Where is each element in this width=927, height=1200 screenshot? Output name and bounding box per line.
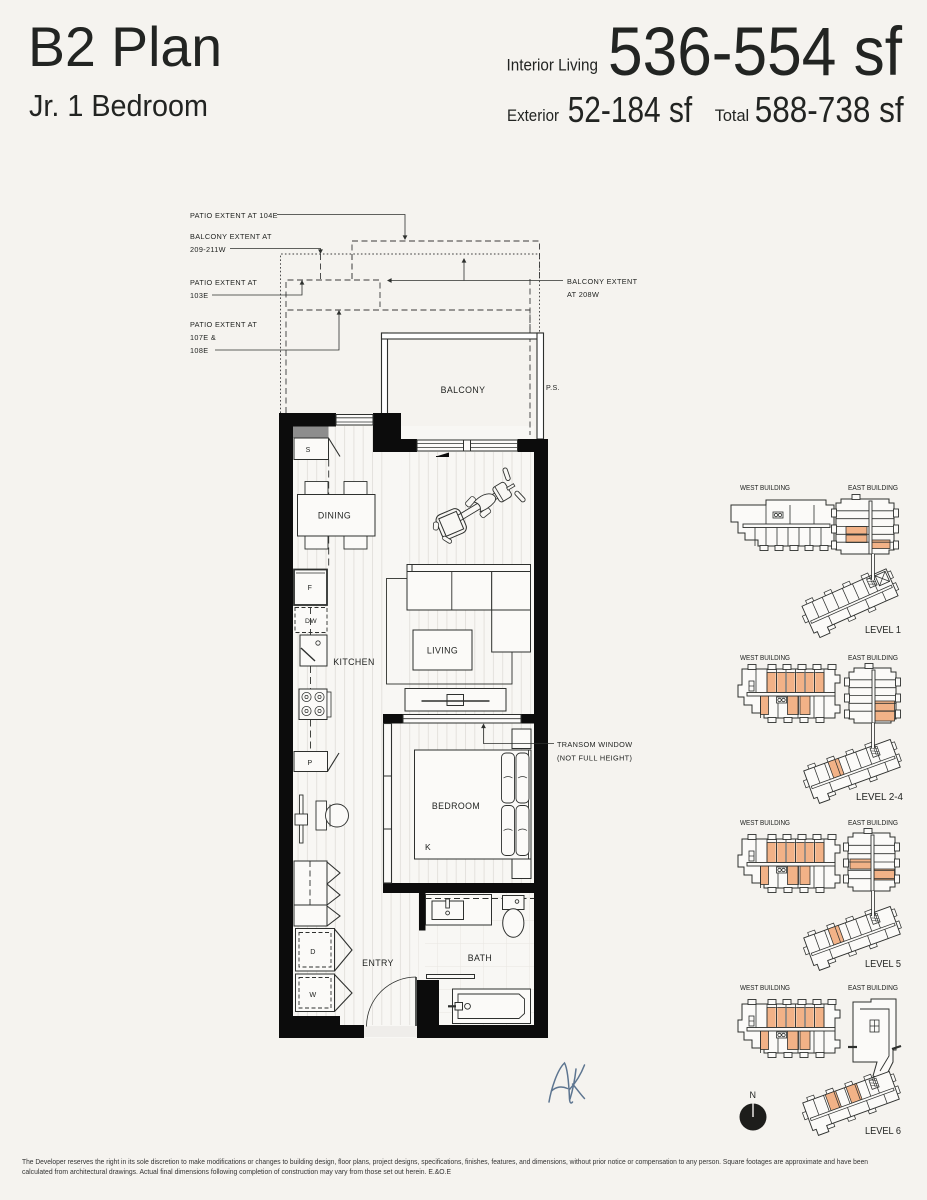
svg-text:LEVEL 2-4: LEVEL 2-4 [856, 792, 903, 803]
svg-text:PATIO EXTENT AT 104E: PATIO EXTENT AT 104E [190, 211, 278, 220]
svg-text:BATH: BATH [468, 953, 492, 963]
svg-text:PATIO EXTENT AT: PATIO EXTENT AT [190, 278, 257, 287]
svg-text:EAST BUILDING: EAST BUILDING [848, 485, 898, 492]
svg-text:B2 Plan: B2 Plan [28, 15, 222, 78]
svg-text:52-184 sf: 52-184 sf [568, 89, 693, 130]
svg-text:TRANSOM WINDOW: TRANSOM WINDOW [557, 740, 632, 749]
svg-text:LEVEL 1: LEVEL 1 [865, 625, 901, 636]
svg-text:107E &: 107E & [190, 333, 216, 342]
svg-text:AT 208W: AT 208W [567, 290, 599, 299]
svg-text:Interior Living: Interior Living [507, 55, 599, 74]
svg-text:Total: Total [715, 106, 750, 125]
svg-text:N: N [750, 1090, 757, 1100]
svg-text:BALCONY EXTENT: BALCONY EXTENT [567, 277, 638, 286]
svg-text:calculated from architectural: calculated from architectural drawings. … [22, 1167, 451, 1176]
svg-text:Jr. 1 Bedroom: Jr. 1 Bedroom [29, 89, 208, 123]
svg-text:EAST BUILDING: EAST BUILDING [848, 985, 898, 992]
svg-text:209-211W: 209-211W [190, 245, 226, 254]
svg-text:BEDROOM: BEDROOM [432, 801, 480, 811]
svg-text:588-738 sf: 588-738 sf [755, 89, 905, 130]
svg-text:F: F [308, 585, 313, 592]
svg-text:The Developer reserves the rig: The Developer reserves the right in its … [22, 1157, 868, 1166]
svg-text:WEST BUILDING: WEST BUILDING [740, 485, 790, 492]
svg-text:103E: 103E [190, 291, 208, 300]
svg-text:P.S.: P.S. [546, 383, 560, 392]
svg-text:536-554 sf: 536-554 sf [608, 13, 903, 90]
svg-text:108E: 108E [190, 346, 208, 355]
svg-text:D: D [310, 947, 316, 956]
svg-text:BALCONY: BALCONY [441, 385, 486, 395]
svg-text:LIVING: LIVING [427, 646, 458, 656]
svg-text:KITCHEN: KITCHEN [333, 657, 374, 667]
svg-text:BALCONY EXTENT AT: BALCONY EXTENT AT [190, 232, 272, 241]
svg-text:(NOT FULL HEIGHT): (NOT FULL HEIGHT) [557, 754, 632, 763]
svg-text:LEVEL 5: LEVEL 5 [865, 959, 901, 970]
svg-text:Exterior: Exterior [507, 106, 559, 125]
svg-text:LEVEL 6: LEVEL 6 [865, 1126, 901, 1137]
svg-text:DINING: DINING [318, 511, 351, 521]
svg-text:WEST BUILDING: WEST BUILDING [740, 985, 790, 992]
svg-text:S: S [306, 447, 311, 454]
svg-text:DW: DW [305, 618, 317, 625]
svg-text:P: P [307, 760, 312, 767]
svg-text:EAST BUILDING: EAST BUILDING [848, 820, 898, 827]
svg-text:EAST BUILDING: EAST BUILDING [848, 655, 898, 662]
svg-text:PATIO EXTENT AT: PATIO EXTENT AT [190, 320, 257, 329]
svg-text:ENTRY: ENTRY [362, 958, 394, 968]
svg-text:K: K [425, 842, 431, 852]
svg-text:WEST BUILDING: WEST BUILDING [740, 655, 790, 662]
svg-text:W: W [309, 990, 316, 999]
svg-text:WEST BUILDING: WEST BUILDING [740, 820, 790, 827]
